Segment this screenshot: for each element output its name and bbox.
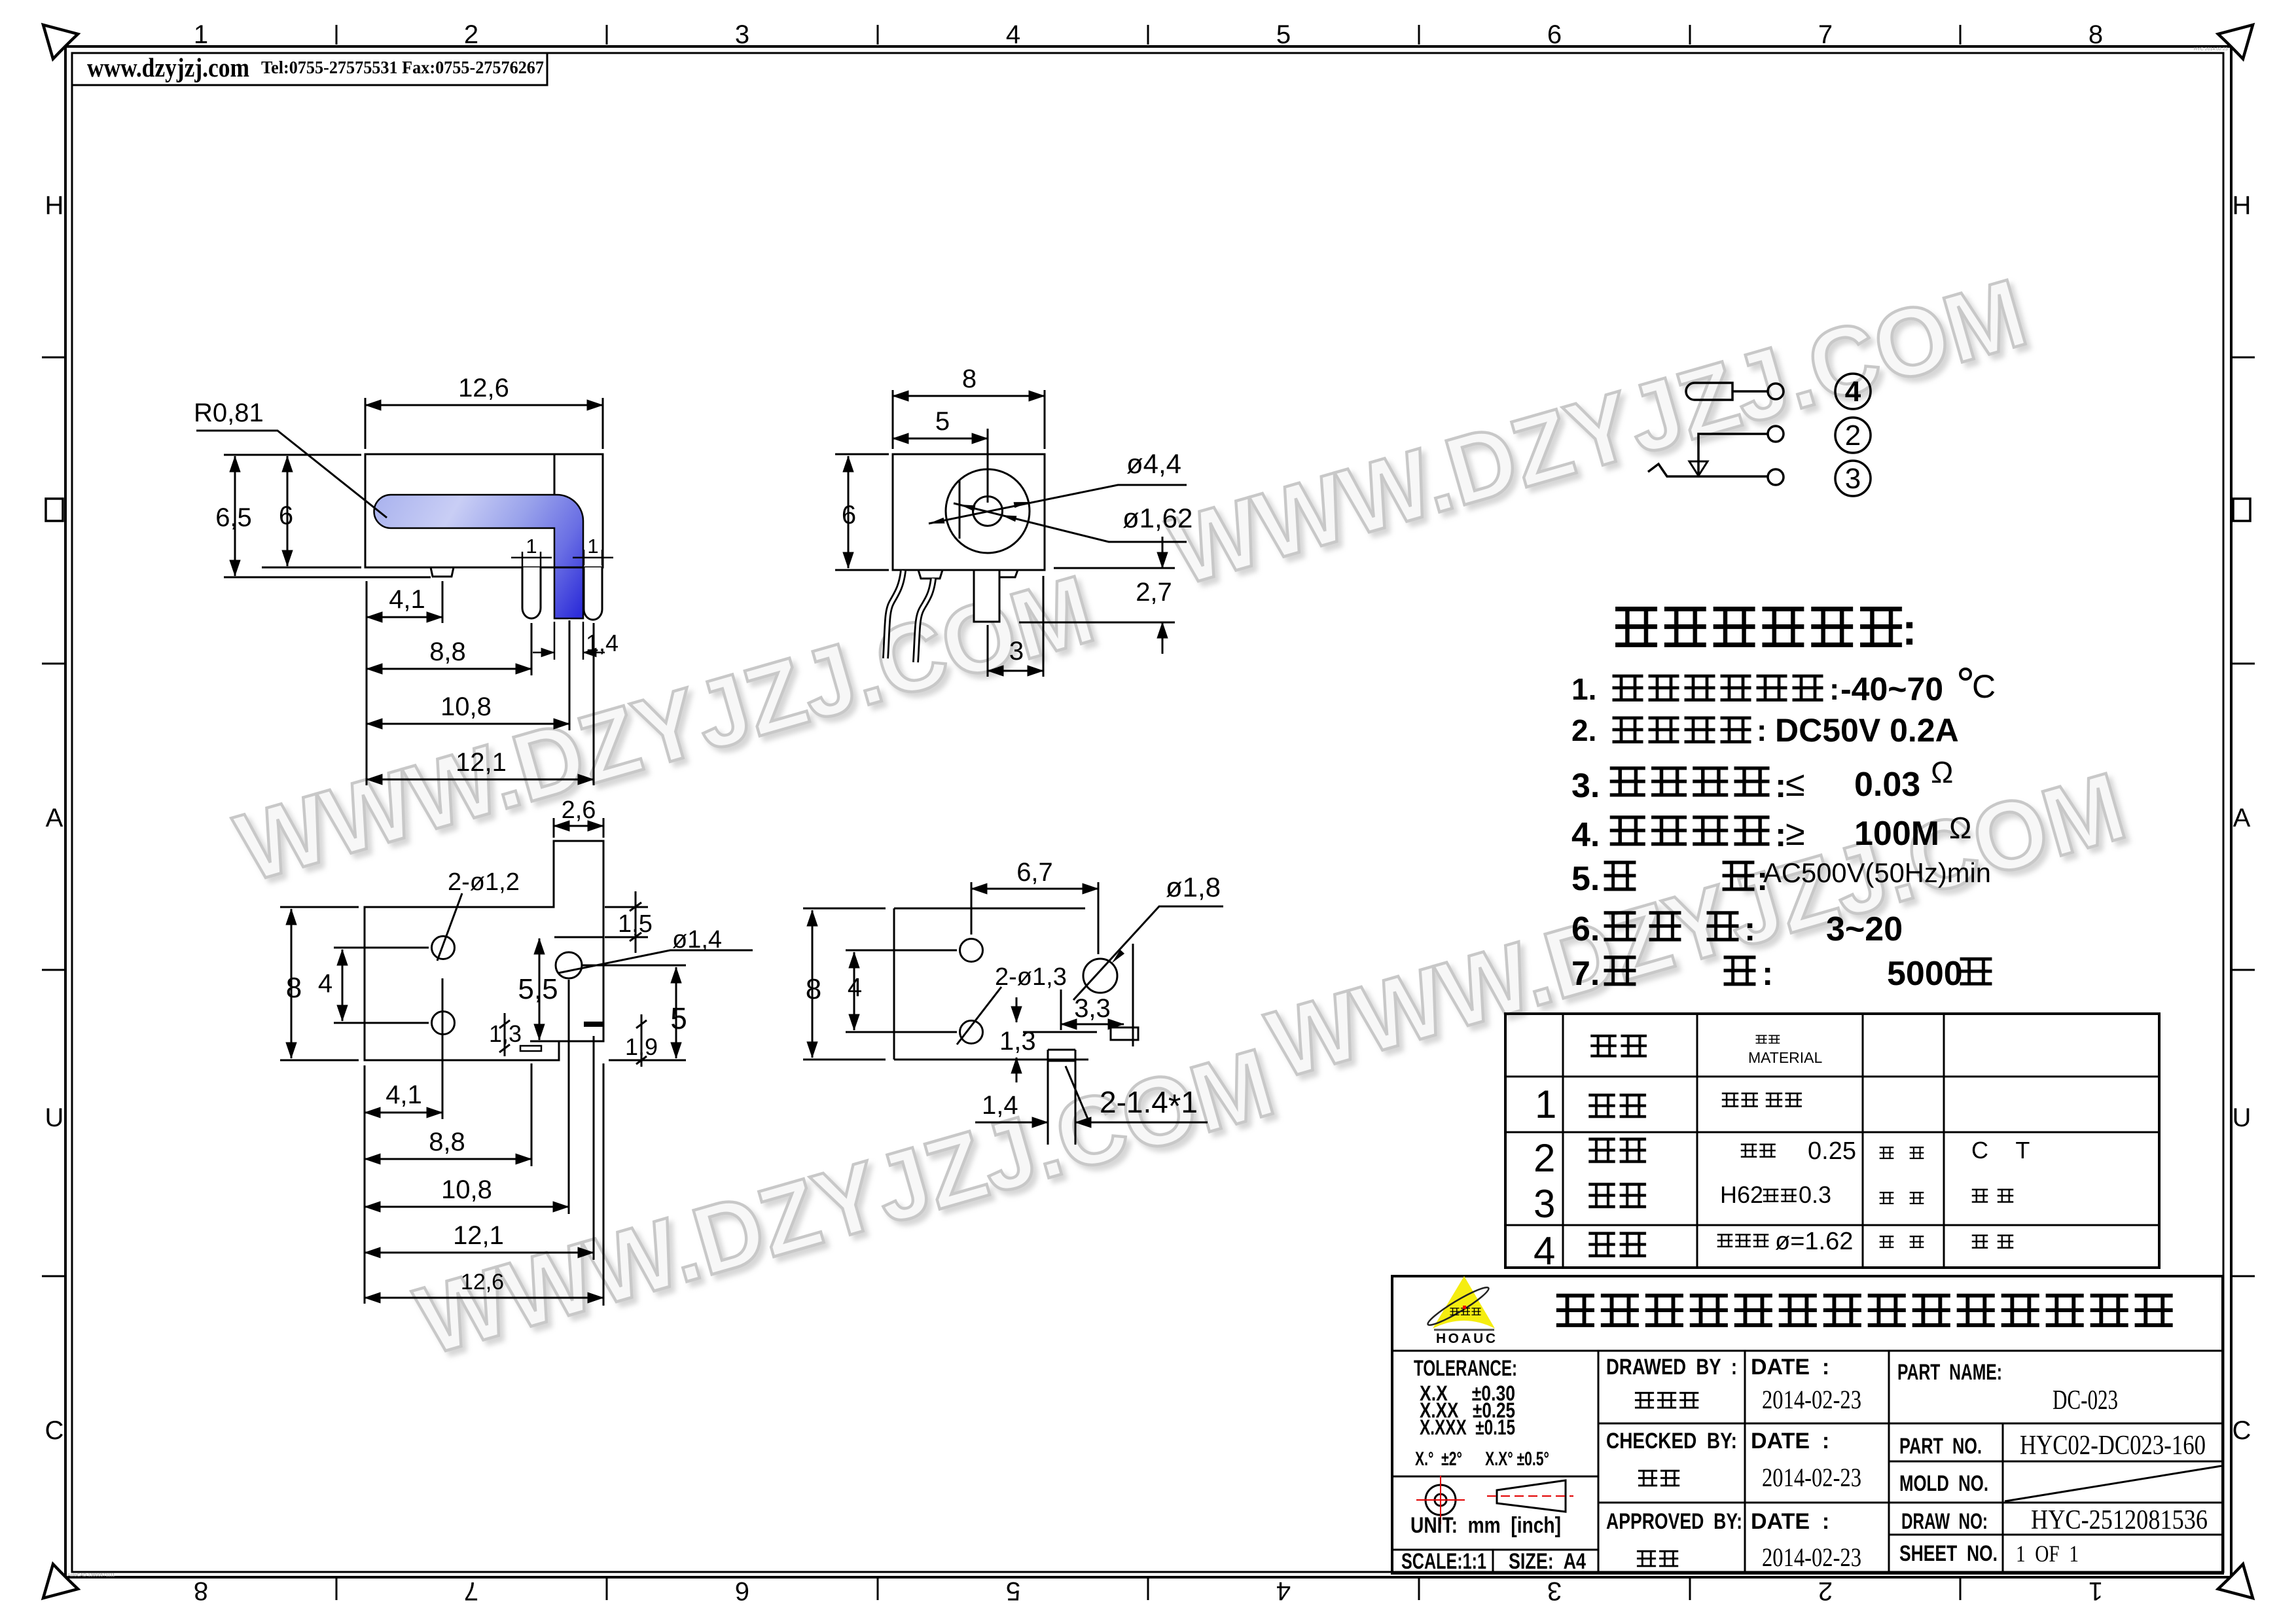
svg-text:2014-02-23: 2014-02-23 [1762, 1543, 1861, 1572]
svg-text:A: A [2233, 804, 2251, 832]
svg-text:3: 3 [1845, 463, 1861, 495]
svg-text:U: U [45, 1103, 64, 1132]
svg-text:SCALE:1:1: SCALE:1:1 [1401, 1549, 1486, 1574]
svg-text:2,6: 2,6 [562, 796, 596, 824]
svg-text:X.XXX ±0.15: X.XXX ±0.15 [1420, 1416, 1515, 1439]
svg-text:3: 3 [1009, 637, 1024, 666]
svg-text::: : [1762, 955, 1773, 993]
svg-text:0.25: 0.25 [1808, 1137, 1856, 1165]
svg-text:3.: 3. [1571, 767, 1600, 805]
svg-text:2.: 2. [1571, 713, 1596, 747]
svg-text:Ω: Ω [1931, 755, 1953, 789]
svg-text:10,8: 10,8 [440, 692, 492, 721]
svg-text:DATE :: DATE : [1751, 1355, 1829, 1380]
svg-text:C: C [1972, 668, 1996, 705]
svg-text:2,7: 2,7 [1136, 578, 1172, 607]
svg-text:1 OF 1: 1 OF 1 [2016, 1541, 2079, 1567]
svg-text:1: 1 [194, 20, 208, 49]
svg-text:UNIT: mm [inch]: UNIT: mm [inch] [1410, 1513, 1561, 1538]
svg-text:C: C [2233, 1416, 2251, 1445]
svg-text:R0,81: R0,81 [194, 399, 264, 427]
svg-text:HYC-2512081536: HYC-2512081536 [2031, 1505, 2208, 1535]
svg-text:1,4: 1,4 [982, 1091, 1018, 1120]
svg-text:PART NAME:: PART NAME: [1897, 1360, 2002, 1385]
svg-text:10,8: 10,8 [441, 1175, 492, 1204]
svg-text:4: 4 [1534, 1229, 1555, 1273]
svg-text:A: A [46, 804, 63, 832]
svg-text:7: 7 [464, 1577, 478, 1605]
svg-text:5: 5 [1276, 20, 1291, 49]
svg-text:0.03: 0.03 [1854, 766, 1920, 804]
svg-text:Ω: Ω [1949, 811, 1971, 845]
svg-text:2-ø1,3: 2-ø1,3 [995, 963, 1067, 991]
svg-text:PART NO.: PART NO. [1899, 1434, 1982, 1459]
svg-text:MOLD NO.: MOLD NO. [1899, 1471, 1988, 1496]
svg-text:12,6: 12,6 [461, 1270, 504, 1294]
svg-text:C: C [45, 1416, 64, 1445]
svg-text:≤: ≤ [1785, 764, 1805, 804]
svg-text:2: 2 [1845, 419, 1861, 452]
svg-text:12,6: 12,6 [458, 374, 509, 402]
svg-text:0.3: 0.3 [1799, 1181, 1831, 1208]
svg-text:4.: 4. [1571, 816, 1600, 854]
svg-text:1: 1 [1535, 1082, 1556, 1126]
svg-text:APPROVED BY:: APPROVED BY: [1606, 1509, 1742, 1534]
svg-text:4: 4 [848, 973, 862, 1002]
svg-text:8: 8 [194, 1577, 208, 1605]
svg-text:8: 8 [962, 365, 977, 393]
svg-text::: : [1744, 910, 1755, 948]
svg-text:2014-02-23: 2014-02-23 [1762, 1463, 1861, 1492]
svg-text:3~20: 3~20 [1826, 910, 1903, 948]
svg-text:5.: 5. [1571, 860, 1600, 898]
svg-text:DATE :: DATE : [1751, 1509, 1829, 1534]
svg-text:8: 8 [286, 972, 302, 1004]
svg-text:2014-02-23: 2014-02-23 [1762, 1385, 1861, 1414]
svg-text:3: 3 [735, 20, 749, 49]
svg-text:DRAW NO:: DRAW NO: [1901, 1509, 1988, 1534]
svg-text:SHEET NO.: SHEET NO. [1899, 1541, 1998, 1566]
svg-text:ø1,8: ø1,8 [1166, 872, 1221, 902]
svg-text:MATERIAL: MATERIAL [1748, 1049, 1823, 1066]
svg-text:Tel:0755-27575531 Fax:0755-27: Tel:0755-27575531 Fax:0755-27576267 [261, 58, 544, 77]
svg-text:ø1,62: ø1,62 [1122, 503, 1193, 533]
svg-text:6: 6 [1547, 20, 1562, 49]
svg-text:HOAUC: HOAUC [1436, 1331, 1498, 1346]
svg-text:HYC02-DC023-160: HYC02-DC023-160 [2020, 1431, 2206, 1461]
svg-text:ø4,4: ø4,4 [1126, 448, 1181, 479]
svg-text:6,5: 6,5 [215, 503, 252, 532]
svg-text:TOLERANCE:: TOLERANCE: [1414, 1356, 1517, 1381]
svg-text:X.° ±2° X.X° ±0.5°: X.° ±2° X.X° ±0.5° [1415, 1448, 1549, 1470]
svg-text::: : [1902, 605, 1917, 654]
svg-text:CHECKED BY:: CHECKED BY: [1606, 1429, 1737, 1454]
svg-text:4: 4 [318, 969, 332, 998]
svg-text:12,1: 12,1 [456, 748, 507, 777]
svg-text:U: U [2233, 1103, 2251, 1132]
svg-text:3: 3 [1547, 1577, 1562, 1605]
svg-text:HYC 2014.02.23: HYC 2014.02.23 [2194, 47, 2228, 52]
svg-text:8,8: 8,8 [429, 637, 466, 666]
svg-text:4: 4 [1276, 1577, 1291, 1605]
svg-text:6: 6 [279, 501, 293, 530]
svg-text:SIZE: A4: SIZE: A4 [1509, 1549, 1586, 1574]
svg-text:4,1: 4,1 [389, 585, 425, 614]
svg-text:4: 4 [1006, 20, 1020, 49]
svg-text:5,5: 5,5 [518, 973, 558, 1005]
svg-text:7: 7 [1818, 20, 1833, 49]
svg-text:12,1: 12,1 [453, 1221, 504, 1250]
svg-text:4: 4 [1845, 376, 1861, 408]
svg-text::: : [1829, 672, 1839, 706]
svg-text:5: 5 [1006, 1577, 1020, 1605]
svg-text:2: 2 [464, 20, 478, 49]
svg-text:H: H [2233, 191, 2251, 220]
svg-text::: : [1775, 816, 1786, 854]
svg-text:AutoCAD:13800571111: AutoCAD:13800571111 [67, 1573, 115, 1578]
svg-text:www.dzyjzj.com: www.dzyjzj.com [87, 52, 249, 82]
svg-text:5: 5 [670, 1001, 687, 1035]
svg-text:6: 6 [735, 1577, 749, 1605]
svg-text:H: H [45, 191, 64, 220]
svg-text:DRAWED BY :: DRAWED BY : [1606, 1355, 1737, 1380]
svg-text:3: 3 [1534, 1182, 1555, 1226]
svg-text:2-1.4*1: 2-1.4*1 [1100, 1085, 1198, 1124]
svg-text:1.: 1. [1571, 672, 1596, 706]
svg-text::: : [1775, 767, 1786, 805]
svg-text:AC500V(50Hz)min: AC500V(50Hz)min [1763, 857, 1991, 888]
svg-text:5000: 5000 [1887, 955, 1963, 993]
svg-text:5: 5 [935, 407, 950, 436]
svg-text:1,5: 1,5 [618, 910, 653, 938]
svg-text:1: 1 [526, 535, 537, 558]
svg-text:2: 2 [1534, 1136, 1555, 1180]
svg-text:DC50V 0.2A: DC50V 0.2A [1775, 712, 1959, 749]
svg-text:8: 8 [2089, 20, 2103, 49]
svg-text:2: 2 [1818, 1577, 1833, 1605]
svg-text:C T: C T [1971, 1137, 2040, 1164]
svg-text:6: 6 [842, 501, 856, 529]
svg-text:H62: H62 [1720, 1181, 1763, 1208]
svg-text:8,8: 8,8 [429, 1128, 465, 1156]
svg-text:DC-023: DC-023 [2053, 1385, 2118, 1416]
svg-text:3,3: 3,3 [1074, 994, 1111, 1023]
svg-text:ø=1.62: ø=1.62 [1775, 1228, 1853, 1255]
svg-text:4,1: 4,1 [386, 1080, 422, 1109]
svg-text:1: 1 [587, 535, 598, 558]
svg-text:1: 1 [2089, 1577, 2103, 1605]
svg-text:100M: 100M [1854, 815, 1939, 853]
svg-text:2-ø1,2: 2-ø1,2 [448, 868, 520, 896]
svg-text::: : [1757, 713, 1767, 747]
svg-text:DATE :: DATE : [1751, 1429, 1829, 1454]
svg-text:8: 8 [806, 973, 821, 1005]
svg-text:-40~70: -40~70 [1840, 671, 1943, 707]
svg-text:1,4: 1,4 [586, 630, 619, 656]
svg-text:≥: ≥ [1785, 813, 1805, 853]
svg-text:6,7: 6,7 [1016, 858, 1053, 887]
svg-text:6.: 6. [1571, 910, 1600, 948]
svg-text:7.: 7. [1571, 955, 1600, 993]
